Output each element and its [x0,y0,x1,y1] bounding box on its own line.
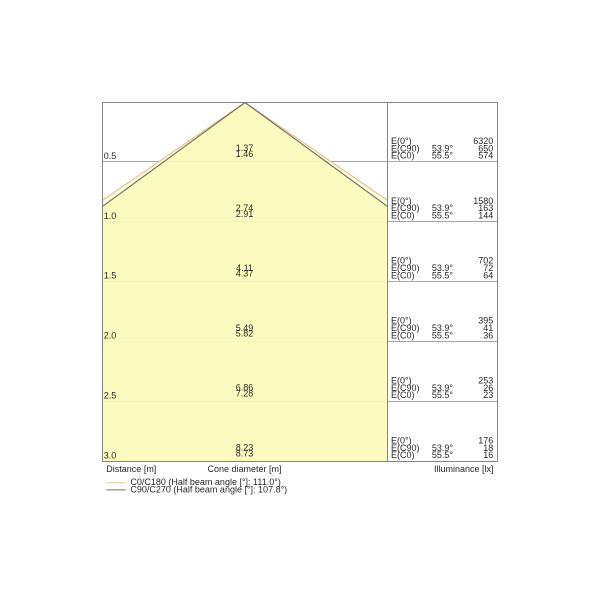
svg-text:E(C0): E(C0) [391,330,415,340]
svg-text:16: 16 [483,450,493,460]
svg-text:55.5°: 55.5° [432,330,454,340]
svg-text:55.5°: 55.5° [432,270,454,280]
svg-text:574: 574 [478,151,493,161]
svg-text:1.0: 1.0 [104,211,117,221]
svg-text:55.5°: 55.5° [432,390,454,400]
svg-text:E(C0): E(C0) [391,450,415,460]
svg-text:5.82: 5.82 [236,329,254,339]
svg-text:2.0: 2.0 [104,331,117,341]
svg-text:0.5: 0.5 [104,151,117,161]
svg-text:E(C0): E(C0) [391,390,415,400]
svg-text:E(C0): E(C0) [391,211,415,221]
svg-text:55.5°: 55.5° [432,450,454,460]
svg-text:E(C0): E(C0) [391,151,415,161]
svg-text:Cone diameter [m]: Cone diameter [m] [207,464,281,474]
svg-text:1.5: 1.5 [104,271,117,281]
svg-text:64: 64 [483,270,493,280]
svg-text:Illuminance [lx]: Illuminance [lx] [434,464,494,474]
svg-text:55.5°: 55.5° [432,151,454,161]
svg-text:2.5: 2.5 [104,391,117,401]
svg-text:144: 144 [478,211,493,221]
svg-text:4.37: 4.37 [236,269,254,279]
svg-text:23: 23 [483,390,493,400]
svg-text:7.28: 7.28 [236,389,254,399]
svg-text:55.5°: 55.5° [432,211,454,221]
svg-text:8.73: 8.73 [236,448,254,458]
svg-text:C90/C270 (Half beam angle [°]:: C90/C270 (Half beam angle [°]: 107.8°) [130,485,287,495]
svg-text:36: 36 [483,330,493,340]
svg-text:1.46: 1.46 [236,149,254,159]
svg-text:2.91: 2.91 [236,209,254,219]
svg-text:3.0: 3.0 [104,450,117,460]
svg-text:Distance [m]: Distance [m] [106,464,156,474]
svg-text:E(C0): E(C0) [391,270,415,280]
